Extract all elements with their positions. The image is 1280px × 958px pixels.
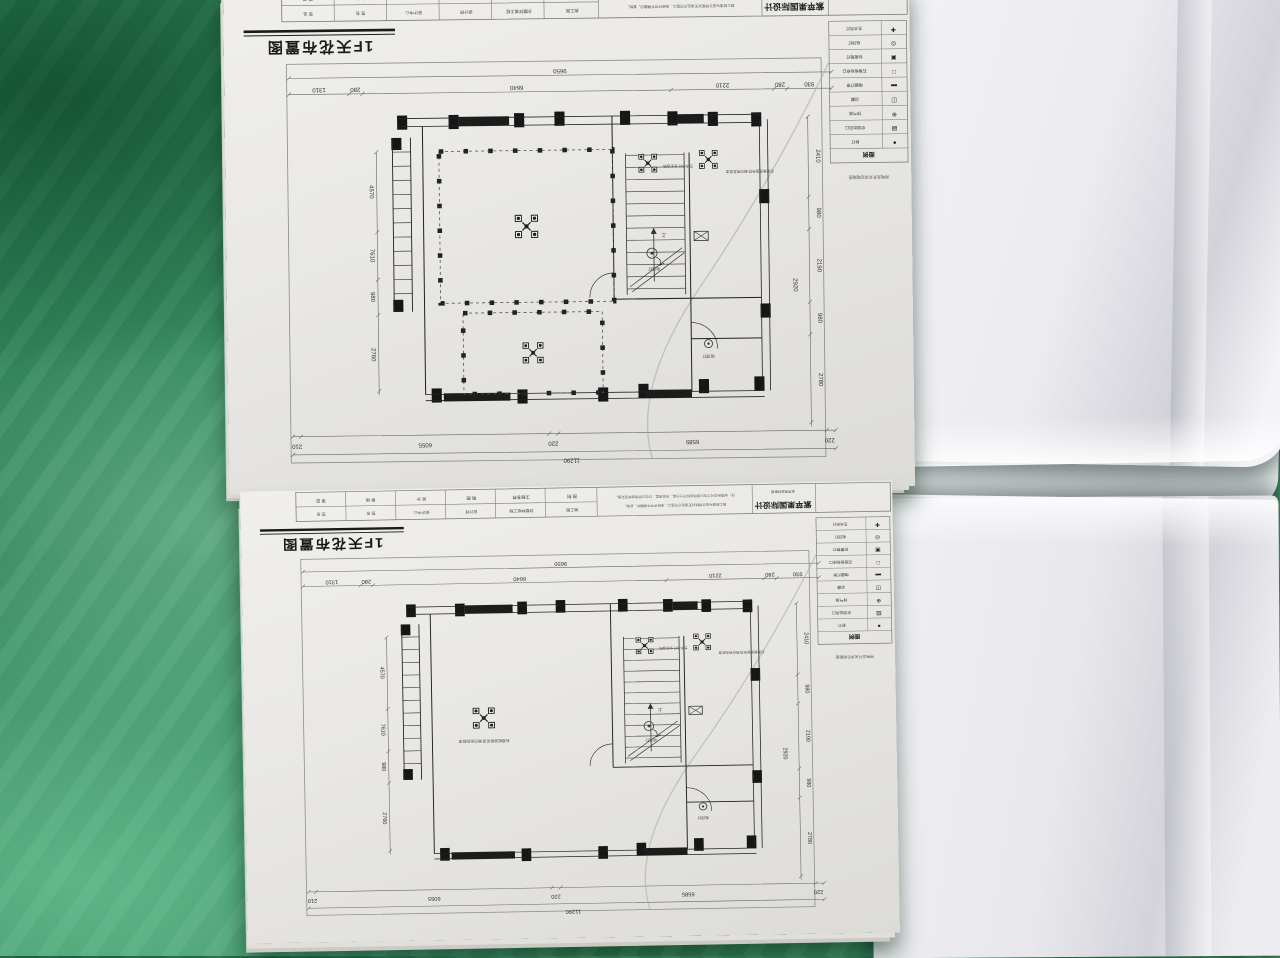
drawing-sheet-1 xyxy=(223,0,915,494)
blank-page-right-bottom xyxy=(870,496,1280,958)
floor-plan-drawing-2 xyxy=(240,480,900,943)
drawing-sheet-2 xyxy=(240,480,900,943)
page-fold-shadow xyxy=(1162,496,1211,956)
floor-plan-drawing-1 xyxy=(223,0,915,494)
page-curl-highlight xyxy=(858,414,1280,468)
page-fold-shadow xyxy=(1170,0,1212,466)
page-curl-highlight xyxy=(870,494,1278,548)
blank-page-right-top xyxy=(858,0,1280,468)
